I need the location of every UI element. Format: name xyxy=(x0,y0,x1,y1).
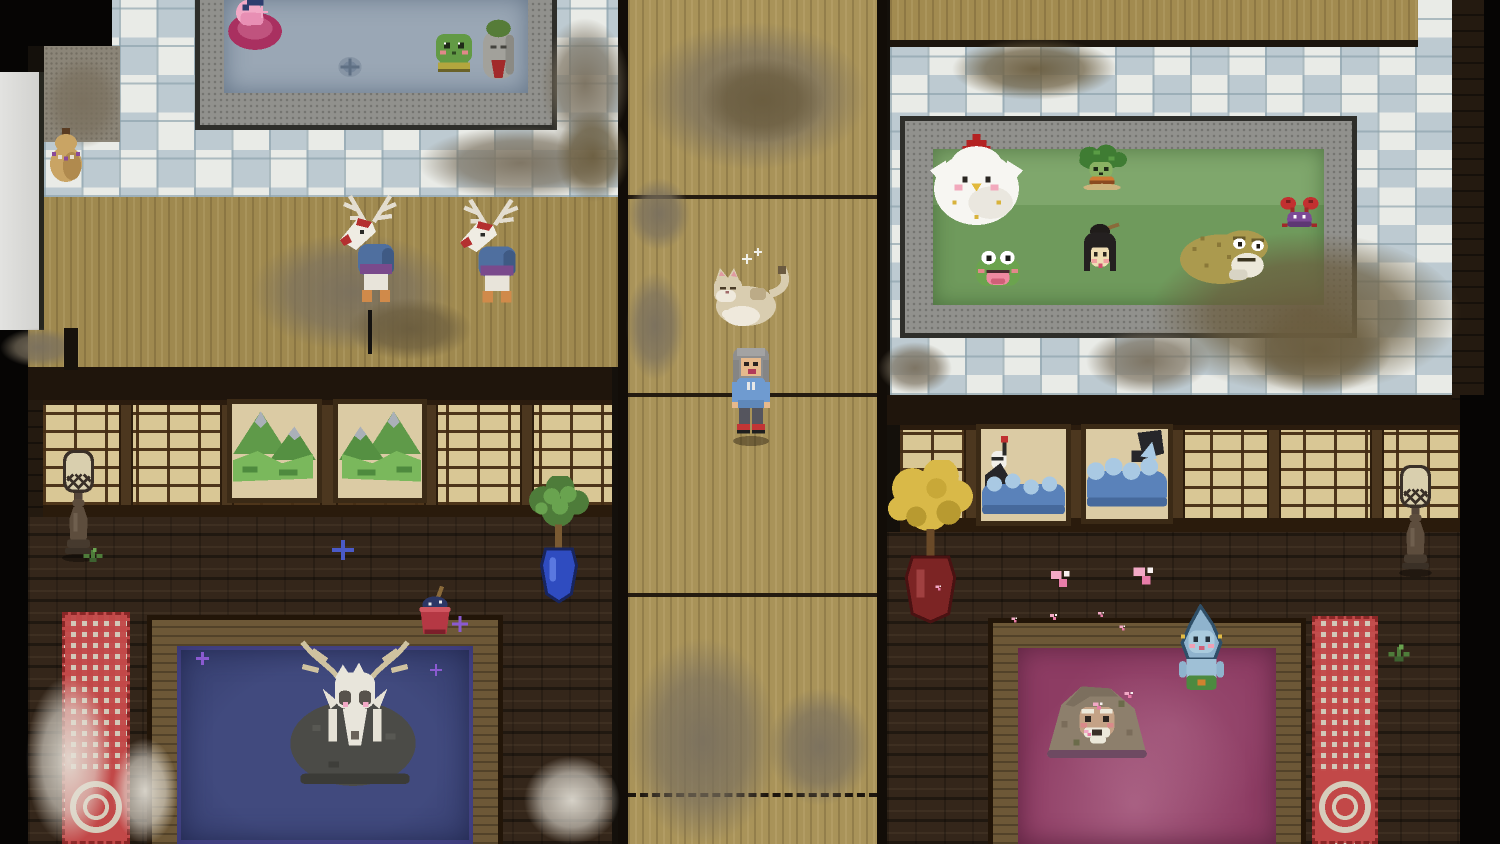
cat-lying[interactable] xyxy=(710,262,798,330)
spirit-chicken[interactable] xyxy=(928,134,1025,229)
sparkle-white xyxy=(754,248,762,256)
spirit-crab[interactable] xyxy=(1277,196,1322,234)
corridor-seam xyxy=(628,593,877,597)
wall-band-right xyxy=(887,395,1484,425)
painting-mountains[interactable] xyxy=(333,399,427,503)
game-viewport xyxy=(0,0,1500,844)
painting-great-wave[interactable] xyxy=(1081,424,1173,524)
black-post xyxy=(64,328,78,370)
petal-pink xyxy=(1090,700,1104,712)
dirt-patch xyxy=(1240,306,1392,394)
grass-sprig xyxy=(1384,642,1414,664)
drain xyxy=(336,54,364,80)
sparkle-blue xyxy=(332,540,354,560)
sparkle-purple xyxy=(452,616,468,632)
spirit-kappa[interactable] xyxy=(1073,144,1129,190)
shoji-post xyxy=(119,405,133,505)
petal-pink xyxy=(1046,566,1072,592)
shoji-post xyxy=(1267,430,1281,525)
doorway-top-left[interactable] xyxy=(28,0,112,46)
dirt-patch xyxy=(878,342,952,394)
petal-pink xyxy=(934,584,942,592)
petal-pink xyxy=(1118,624,1126,632)
petal-pink xyxy=(1048,612,1058,622)
carpet-runner-right xyxy=(1312,616,1378,844)
petal-pink xyxy=(1010,616,1018,624)
dirt-patch xyxy=(628,638,778,844)
petal-pink xyxy=(1128,562,1156,590)
dirt-patch xyxy=(628,178,690,250)
dirt-patch xyxy=(626,272,684,380)
petal-pink xyxy=(1122,690,1134,700)
painting-crane-waves[interactable] xyxy=(976,424,1071,526)
sparkle-pink xyxy=(256,6,268,18)
teardrop-spirit[interactable] xyxy=(1170,604,1233,698)
painting-mountains[interactable] xyxy=(227,399,322,503)
dirt-patch xyxy=(1086,328,1210,394)
dust-patch xyxy=(524,756,620,844)
spirit-frog-bather[interactable] xyxy=(430,28,478,75)
sparkle-purple xyxy=(196,652,209,665)
deer-spirit-walking[interactable] xyxy=(458,196,528,314)
dust-patch xyxy=(26,676,112,844)
jizo-statue-spirit[interactable] xyxy=(479,18,518,83)
wall-band-left xyxy=(28,367,612,400)
dirt-patch xyxy=(768,688,872,806)
gourd-spirit[interactable] xyxy=(46,128,86,186)
spirit-toad[interactable] xyxy=(1176,222,1272,286)
petal-pink xyxy=(1082,728,1093,738)
sparkle-white xyxy=(742,254,752,264)
stone-lantern[interactable] xyxy=(57,448,100,562)
spirit-woman-bather[interactable] xyxy=(1076,222,1124,290)
mountain-monkey-spirit[interactable] xyxy=(1041,672,1153,760)
dust-patch xyxy=(112,738,178,844)
deer-spirit-walking[interactable] xyxy=(338,192,406,314)
deer-skull-spirit[interactable] xyxy=(268,628,440,796)
void-bottom-right xyxy=(1460,395,1500,844)
dirt-patch xyxy=(700,58,825,143)
shoji-post xyxy=(1171,430,1185,525)
white-sliding-door[interactable] xyxy=(0,72,44,330)
grass-sprig xyxy=(80,546,106,564)
dirt-patch xyxy=(952,38,1117,100)
petal-pink xyxy=(1096,610,1105,619)
stone-lantern[interactable] xyxy=(1394,463,1437,577)
sparkle-purple xyxy=(430,664,442,676)
player-character[interactable] xyxy=(727,344,775,446)
dirt-patch xyxy=(556,110,630,202)
spirit-otter-in-ring[interactable] xyxy=(222,0,286,52)
spirit-frog-singing[interactable] xyxy=(972,248,1024,290)
potted-tree-red-vase[interactable] xyxy=(888,460,975,630)
potted-tree-blue-vase[interactable] xyxy=(527,476,591,610)
shoji-post xyxy=(1370,430,1384,525)
walking-staff xyxy=(368,310,372,354)
